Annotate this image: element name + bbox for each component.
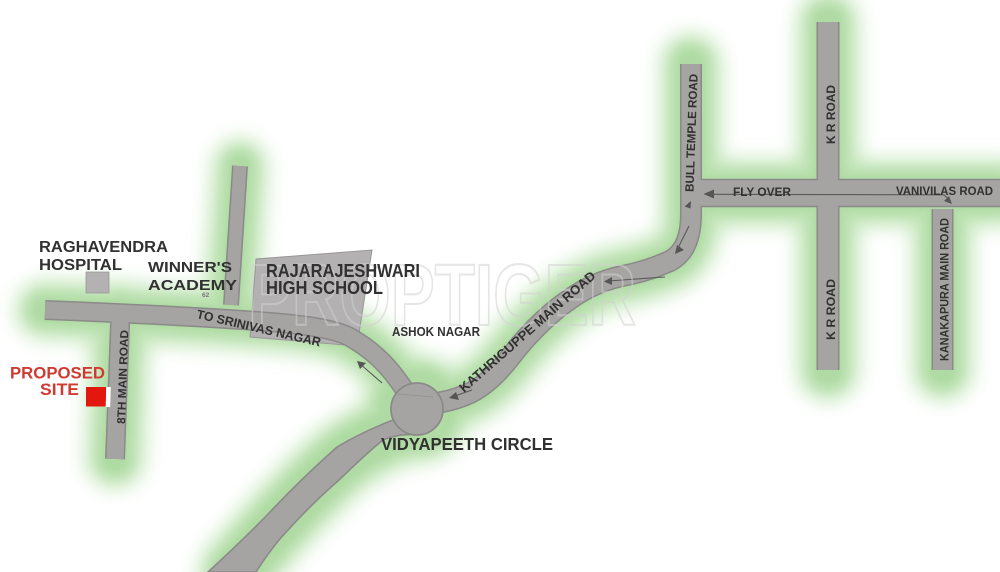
svg-text:K R ROAD: K R ROAD (824, 279, 838, 340)
svg-text:KANAKAPURA MAIN ROAD: KANAKAPURA MAIN ROAD (940, 218, 952, 361)
svg-text:VIDYAPEETH CIRCLE: VIDYAPEETH CIRCLE (381, 434, 553, 454)
svg-text:WINNER'S: WINNER'S (148, 259, 232, 276)
svg-text:SITE: SITE (40, 380, 79, 399)
svg-text:62: 62 (202, 292, 210, 299)
svg-text:RAGHAVENDRA: RAGHAVENDRA (39, 239, 168, 256)
svg-text:ACADEMY: ACADEMY (148, 277, 237, 294)
svg-text:HOSPITAL: HOSPITAL (39, 257, 122, 274)
svg-text:FLY OVER: FLY OVER (733, 185, 791, 199)
svg-text:K R ROAD: K R ROAD (824, 85, 838, 144)
svg-text:VANIVILAS ROAD: VANIVILAS ROAD (896, 184, 993, 198)
svg-text:HIGH SCHOOL: HIGH SCHOOL (266, 278, 383, 298)
svg-text:ASHOK NAGAR: ASHOK NAGAR (392, 325, 480, 339)
